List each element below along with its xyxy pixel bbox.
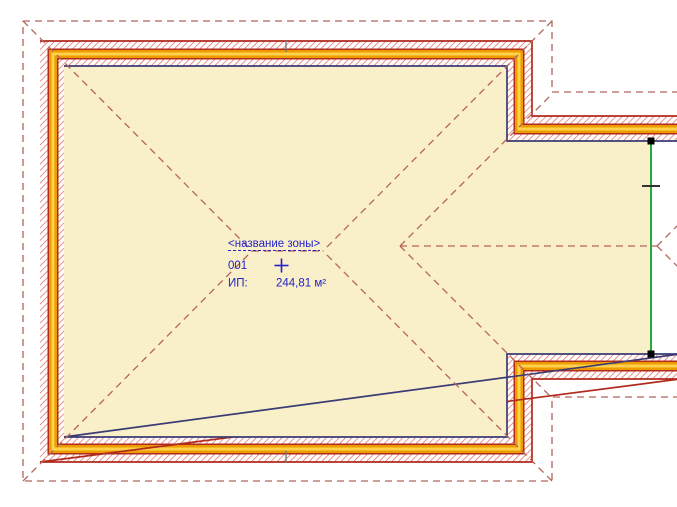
zone-name-text[interactable]: <название зоны> <box>228 238 321 250</box>
zone-area-label[interactable]: ИП: <box>228 278 248 290</box>
drawing-canvas[interactable]: <название зоны> 001 ИП: 244,81 м² <box>0 0 677 507</box>
endpoint-handle-top[interactable] <box>648 138 655 145</box>
zone-number-text[interactable]: 001 <box>228 260 247 272</box>
floor-plan: <название зоны> 001 ИП: 244,81 м² <box>0 0 677 507</box>
zone-area-value[interactable]: 244,81 м² <box>276 278 326 290</box>
endpoint-handle-bottom[interactable] <box>648 351 655 358</box>
